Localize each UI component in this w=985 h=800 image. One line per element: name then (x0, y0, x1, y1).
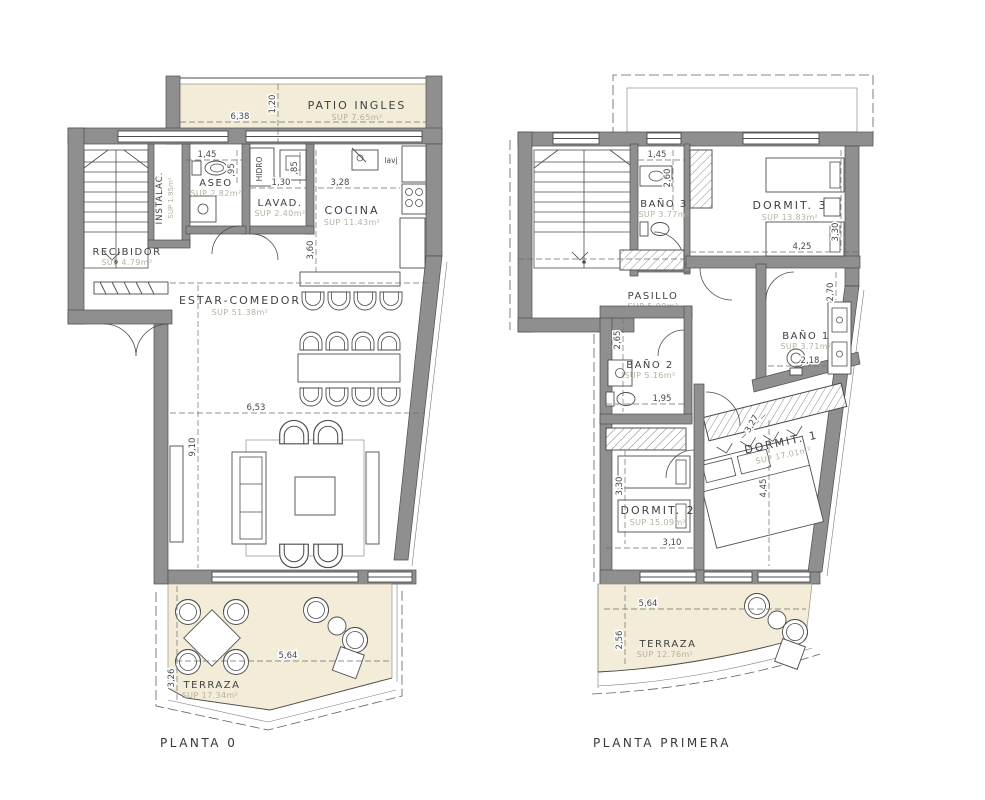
door-arc (700, 268, 732, 300)
wall (518, 318, 634, 332)
grille (94, 282, 168, 294)
wall (242, 144, 250, 234)
door-arc (252, 234, 278, 260)
room-sup-dormit2: SUP 15.09m² (630, 518, 687, 527)
dim-estar-h: 9,10 (188, 438, 198, 457)
door-arc (766, 272, 794, 300)
room-sup-banyo2: SUP 5.16m² (624, 371, 675, 380)
living-furniture (170, 420, 379, 567)
sideboard (366, 452, 379, 544)
kitchen-bar (300, 272, 400, 286)
dim-cocina-w: 3,28 (331, 178, 350, 188)
wardrobe (690, 150, 712, 208)
room-sup-terraza1: SUP 12.76m² (637, 650, 694, 659)
wall (68, 310, 172, 324)
kitchen-sink (352, 148, 378, 170)
wall (148, 144, 154, 246)
dim-terraza0-w: 5,64 (279, 651, 298, 661)
room-label-aseo: ASEO (199, 178, 232, 189)
room-label-lavad: LAVAD. (258, 198, 303, 209)
kitchen-counter (400, 218, 425, 268)
room-label-terraza0: TERRAZA (183, 680, 241, 691)
dim-dormit2-w: 3,10 (663, 538, 682, 548)
double-sink (828, 302, 851, 374)
room-label-estar: ESTAR-COMEDOR (179, 294, 301, 307)
dim-lavad-w: 1,30 (272, 178, 291, 188)
room-label-recibidor: RECIBIDOR (92, 247, 161, 258)
room-label-terraza1: TERRAZA (639, 639, 697, 650)
washbasin (190, 196, 216, 222)
stove (402, 184, 426, 214)
dim-banyo3-h: 2,60 (663, 169, 673, 188)
terrace-dining-set (176, 600, 249, 675)
room-sup-dormit3: SUP 13.83m² (762, 213, 819, 222)
floorplan-svg: INSTALAC. SUP 1.95m² ASEO SUP 2.82m² 1,4… (0, 0, 985, 800)
dim-banyo2-h: 2,65 (613, 331, 623, 350)
room-label-dormit2: DORMIT. 2 (621, 504, 696, 517)
wall-left-lower (600, 318, 612, 584)
window (118, 131, 422, 142)
staircase (534, 150, 634, 268)
room-sup-recibidor: SUP 4.79m² (101, 258, 152, 267)
roof-plane (627, 88, 857, 132)
wall (756, 264, 766, 384)
floor-plan-page: INSTALAC. SUP 1.95m² ASEO SUP 2.82m² 1,4… (0, 0, 985, 800)
wall-right (426, 144, 442, 256)
plan-planta-0: INSTALAC. SUP 1.95m² ASEO SUP 2.82m² 1,4… (68, 76, 447, 750)
window (640, 572, 810, 582)
dim-banyo2-w: 1,95 (653, 394, 672, 404)
plan-title-p0: PLANTA 0 (160, 736, 237, 750)
kitchen-counter (402, 146, 426, 182)
wardrobe (606, 428, 686, 450)
dim-dormit1-h: 4,45 (759, 479, 769, 498)
room-sup-lavad: SUP 2.40m² (254, 209, 305, 218)
dim-estar-w: 6,53 (247, 403, 266, 413)
wall (250, 226, 314, 234)
dim-patio-w: 6,38 (231, 112, 250, 122)
room-sup-patio: SUP 7.65m² (331, 113, 382, 122)
dim-dormit3-h: 3,30 (831, 223, 841, 242)
wall (600, 414, 692, 424)
plan-title-p1: PLANTA PRIMERA (593, 736, 731, 750)
dim-terraza1-w: 5,64 (639, 599, 658, 609)
radiator (170, 446, 183, 542)
wall-left (68, 128, 84, 324)
dim-terraza1-h: 2,56 (615, 631, 625, 650)
dim-dormit2-h: 3,30 (615, 477, 625, 496)
hidro-label: HIDRO (255, 157, 264, 182)
dim-aseo-w: 1,45 (198, 150, 217, 160)
dining-table (298, 332, 400, 406)
toilet (192, 161, 227, 175)
room-label-cocina: COCINA (324, 204, 379, 217)
room-sup-instalac: SUP 1.95m² (167, 177, 175, 218)
wall (306, 144, 314, 234)
dim-terraza0-h: 3,26 (167, 669, 177, 688)
dim-dormit3-w: 4,25 (793, 242, 812, 252)
bed-single (766, 158, 844, 192)
room-sup-banyo3: SUP 3.77m² (638, 210, 689, 219)
wall (186, 226, 246, 234)
wall-left-lower (154, 324, 168, 584)
wardrobe (620, 250, 684, 270)
dim-lavad-h: ,85 (290, 161, 300, 175)
wall-left (518, 132, 532, 332)
sofa (232, 452, 266, 544)
room-sup-estar: SUP 51.38m² (212, 308, 269, 317)
coffee-table (295, 477, 335, 515)
plan-planta-primera: BAÑO 3 SUP 3.77m² 1,45 2,60 DORMIT. 3 SU… (510, 75, 873, 750)
dim-cocina-h: 3,60 (306, 241, 316, 260)
bed-single (618, 456, 690, 488)
room-label-banyo1: BAÑO 1 (782, 329, 830, 342)
room-sup-aseo: SUP 2.82m² (190, 189, 241, 198)
room-sup-banyo1: SUP 3.71m² (780, 342, 831, 351)
room-sup-terraza0: SUP 17.34m² (182, 691, 239, 700)
room-sup-cocina: SUP 11.43m² (324, 218, 381, 227)
dim-banyo1-h: 2,70 (826, 283, 836, 302)
room-label-instalac: INSTALAC. (155, 172, 165, 225)
room-label-banyo3: BAÑO 3 (640, 197, 688, 210)
room-label-patio: PATIO INGLES (308, 99, 407, 112)
window (212, 572, 412, 582)
wall (694, 384, 704, 570)
door-arc (658, 330, 684, 356)
wall (686, 256, 860, 268)
room-label-banyo2: BAÑO 2 (626, 358, 674, 371)
door-arc (104, 324, 136, 356)
dim-banyo3-w: 1,45 (648, 150, 667, 160)
dim-patio-h: 1,20 (268, 95, 278, 114)
room-label-dormit3: DORMIT. 3 (753, 199, 828, 212)
room-label-pasillo: PASILLO (628, 291, 679, 302)
dim-banyo1-w: 2,18 (801, 356, 820, 366)
dim-aseo-h: ,95 (227, 163, 237, 177)
lavj-label: lavj (384, 156, 397, 165)
wall (684, 306, 692, 422)
wall (600, 306, 692, 318)
